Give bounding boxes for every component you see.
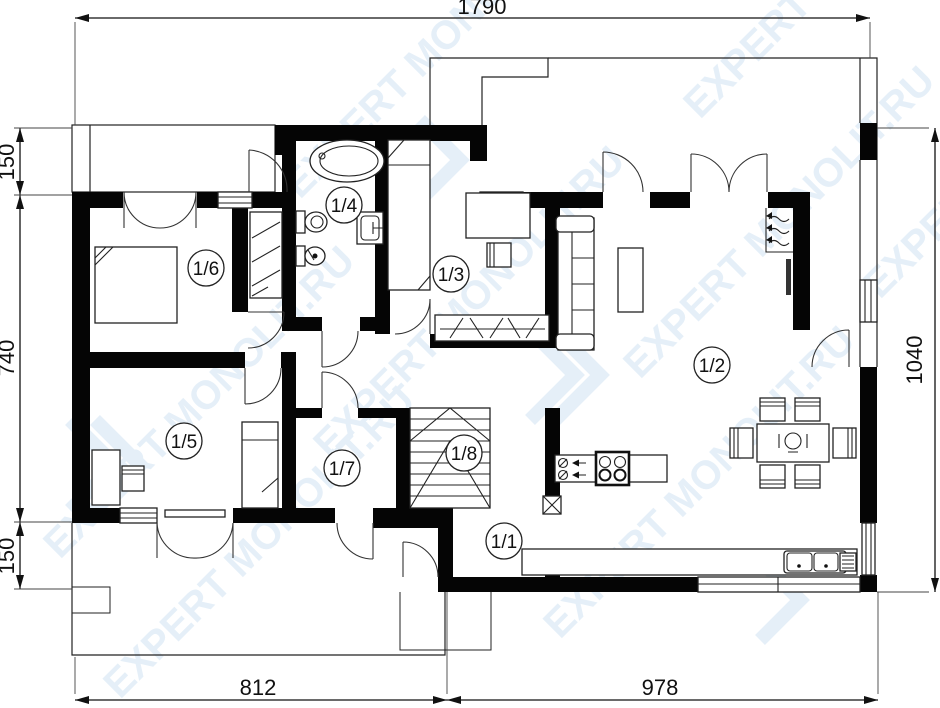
chair-icon	[760, 465, 785, 488]
room-label-1-1: 1/1	[486, 523, 522, 559]
coffee-table-icon	[618, 248, 643, 312]
door-arc	[322, 331, 358, 367]
room-label-text: 1/2	[699, 356, 725, 377]
watermark-text: EXPERT MONOLIT.RU	[615, 58, 940, 386]
wardrobe-icon	[435, 315, 549, 341]
door-arc	[691, 154, 767, 192]
room-label-text: 1/1	[491, 532, 517, 553]
room-label-text: 1/6	[193, 259, 219, 280]
room-label-text: 1/7	[329, 459, 355, 480]
dimension-bottom-left-label: 812	[240, 675, 277, 700]
kitchen-island-icon	[555, 452, 667, 485]
room-label-1-6: 1/6	[188, 250, 224, 286]
dimension-left-top-label: 150	[0, 144, 19, 181]
chair-icon	[487, 243, 511, 267]
vent-shaft-icon	[543, 496, 561, 514]
room-label-1-2: 1/2	[694, 347, 730, 383]
chair-icon	[730, 428, 753, 458]
room-label-text: 1/5	[171, 432, 197, 453]
floor-plan-page: EXPERT MONOLIT.RU EXPERT MONOLIT.RU EXPE…	[0, 0, 940, 708]
room-label-1-5: 1/5	[166, 423, 202, 459]
toilet-icon	[296, 211, 327, 233]
door-arc	[337, 523, 373, 559]
bathtub-icon	[310, 140, 384, 182]
door-arc	[124, 192, 196, 228]
room-label-1-7: 1/7	[324, 450, 360, 486]
room-label-text: 1/8	[451, 444, 477, 465]
bed-icon	[388, 140, 430, 290]
sink-icon	[357, 212, 383, 244]
bidet-icon	[296, 246, 325, 266]
dimension-right-label: 1040	[902, 336, 927, 385]
bed-icon	[95, 247, 177, 323]
door-arc	[403, 542, 438, 577]
dimension-bottom-right-label: 978	[642, 675, 679, 700]
drainer-icon	[840, 553, 856, 571]
room-label-1-4: 1/4	[326, 187, 362, 223]
window-icon	[860, 280, 877, 322]
window-icon	[862, 523, 875, 575]
dining-table-icon	[757, 424, 829, 462]
chair-icon	[122, 466, 144, 491]
desk-icon	[466, 193, 530, 238]
room-label-text: 1/3	[438, 265, 464, 286]
floor-plan-drawing: EXPERT MONOLIT.RU EXPERT MONOLIT.RU EXPE…	[0, 0, 940, 708]
dimension-left-bottom-label: 150	[0, 538, 19, 575]
room-label-text: 1/4	[331, 196, 358, 217]
room-label-1-8: 1/8	[446, 435, 482, 471]
chair-icon	[833, 428, 856, 458]
kitchen-counter-icon	[522, 549, 857, 575]
desk-icon	[92, 450, 120, 505]
chair-icon	[795, 465, 820, 488]
chair-icon	[795, 398, 820, 421]
chair-icon	[760, 398, 785, 421]
tv-icon	[786, 259, 791, 295]
door-threshold	[165, 510, 225, 517]
window-icon	[698, 577, 860, 592]
dimension-left-middle-label: 740	[0, 340, 19, 377]
dimension-right: 1040	[877, 128, 939, 592]
dimension-top-label: 1790	[458, 0, 507, 19]
window-icon	[120, 508, 157, 523]
wardrobe-icon	[250, 212, 282, 298]
sofa-icon	[556, 216, 594, 350]
window-icon	[218, 192, 252, 208]
room-label-1-3: 1/3	[433, 256, 469, 292]
bed-icon	[242, 422, 278, 508]
